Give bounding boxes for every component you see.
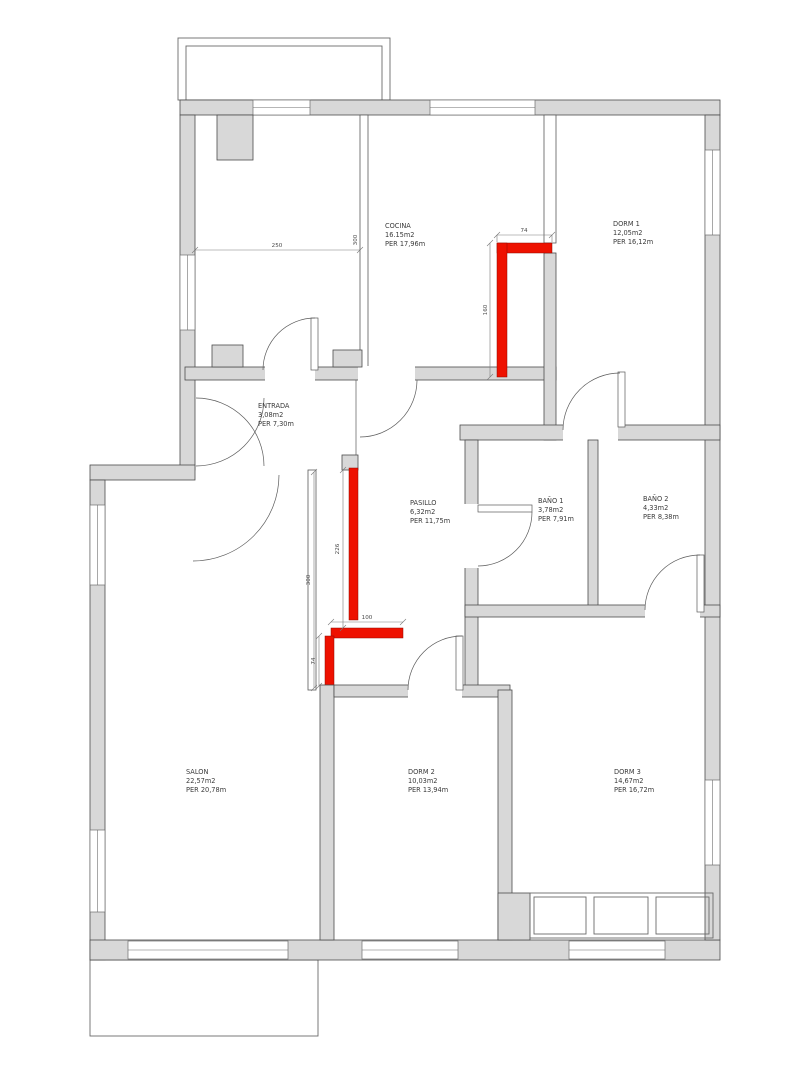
room-area: 16.15m2 bbox=[385, 231, 415, 239]
pillar-pasillo-top bbox=[333, 350, 362, 367]
floor-plan-drawing: 250 300 74 160 226 300 100 74 COCINA 16.… bbox=[0, 0, 811, 1080]
room-label-pasillo: PASILLO 6,32m2 PER 11,75m bbox=[410, 499, 450, 525]
room-perimeter: PER 20,78m bbox=[186, 786, 226, 794]
red-wall-kitchen-side bbox=[497, 243, 507, 377]
room-name: DORM 3 bbox=[614, 768, 641, 776]
room-label-cocina: COCINA 16.15m2 PER 17,96m bbox=[385, 222, 425, 248]
top-terrace-inner-outline bbox=[186, 46, 382, 100]
room-label-entrada: ENTRADA 3,08m2 PER 7,30m bbox=[258, 402, 294, 428]
door-gap-cocina bbox=[358, 366, 415, 381]
room-perimeter: PER 16,72m bbox=[614, 786, 654, 794]
dim-label-160: 160 bbox=[483, 304, 489, 315]
door-leaf-bano2 bbox=[697, 555, 704, 612]
window-dorm3-bottom bbox=[569, 941, 665, 959]
dim-label-100: 100 bbox=[362, 615, 373, 621]
room-perimeter: PER 7,91m bbox=[538, 515, 574, 523]
wall-leftroom-cocina bbox=[360, 115, 368, 367]
closet-section-3 bbox=[656, 897, 709, 934]
room-area: 3,08m2 bbox=[258, 411, 283, 419]
room-name: SALON bbox=[186, 768, 208, 776]
room-label-dorm2: DORM 2 10,03m2 PER 13,94m bbox=[408, 768, 448, 794]
room-name: BAÑO 2 bbox=[643, 494, 668, 503]
window-salon-left-2 bbox=[90, 830, 105, 912]
room-area: 10,03m2 bbox=[408, 777, 438, 785]
dim-label-226: 226 bbox=[335, 543, 341, 554]
dim-label-74-pasillo: 74 bbox=[311, 657, 317, 665]
room-area: 3,78m2 bbox=[538, 506, 563, 514]
door-gap-dorm2 bbox=[408, 684, 462, 698]
room-area: 12,05m2 bbox=[613, 229, 643, 237]
wall-salon-dorm2 bbox=[320, 685, 334, 940]
room-perimeter: PER 13,94m bbox=[408, 786, 448, 794]
room-perimeter: PER 7,30m bbox=[258, 420, 294, 428]
room-area: 14,67m2 bbox=[614, 777, 644, 785]
pillar-top-left-room bbox=[217, 115, 253, 160]
room-area: 6,32m2 bbox=[410, 508, 435, 516]
room-area: 4,33m2 bbox=[643, 504, 668, 512]
room-label-dorm1: DORM 1 12,05m2 PER 16,12m bbox=[613, 220, 653, 246]
window-dorm1-right bbox=[705, 150, 720, 235]
window-kitchen-top bbox=[430, 100, 535, 115]
room-perimeter: PER 11,75m bbox=[410, 517, 450, 525]
room-label-bano1: BAÑO 1 3,78m2 PER 7,91m bbox=[538, 496, 574, 523]
exterior-wall-step bbox=[90, 465, 195, 480]
dim-label-250: 250 bbox=[272, 243, 283, 249]
door-leaf-dorm2 bbox=[456, 636, 463, 690]
door-gap-bano2 bbox=[645, 604, 700, 618]
pillar-entrada-left bbox=[212, 345, 243, 367]
room-name: PASILLO bbox=[410, 499, 437, 507]
room-perimeter: PER 8,38m bbox=[643, 513, 679, 521]
window-dorm2-bottom bbox=[362, 941, 458, 959]
door-leaf-bano1 bbox=[478, 505, 532, 512]
top-terrace-outline bbox=[178, 38, 390, 100]
room-name: DORM 2 bbox=[408, 768, 435, 776]
room-perimeter: PER 17,96m bbox=[385, 240, 425, 248]
room-name: BAÑO 1 bbox=[538, 496, 563, 505]
window-salon-left-1 bbox=[90, 505, 105, 585]
floor-plan-page: 250 300 74 160 226 300 100 74 COCINA 16.… bbox=[0, 0, 811, 1080]
closet-outline bbox=[530, 893, 713, 938]
door-arc-entrance-2 bbox=[196, 398, 264, 466]
closet-pillar bbox=[498, 893, 530, 940]
bottom-terrace-outline bbox=[90, 960, 318, 1036]
room-name: DORM 1 bbox=[613, 220, 640, 228]
door-gap-leftroom bbox=[265, 366, 315, 381]
door-gap-bano1 bbox=[464, 504, 479, 568]
dim-label-74-kitchen: 74 bbox=[520, 228, 528, 234]
wall-cocina-dorm1-lower bbox=[544, 253, 556, 440]
window-left-upper bbox=[180, 255, 195, 330]
red-wall-pasillo-stub bbox=[325, 636, 334, 686]
room-label-salon: SALON 22,57m2 PER 20,78m bbox=[186, 768, 226, 794]
window-top-left bbox=[253, 100, 310, 115]
window-salon-bottom bbox=[128, 941, 288, 959]
window-dorm3-right bbox=[705, 780, 720, 865]
door-arc-leftroom bbox=[263, 318, 315, 370]
dim-label-300-salon: 300 bbox=[306, 574, 312, 585]
door-arc-entrance-1 bbox=[196, 398, 264, 466]
door-arc-bano1 bbox=[478, 512, 532, 566]
door-arc-salon bbox=[193, 475, 279, 561]
wall-cocina-dorm1-upper bbox=[544, 115, 556, 243]
door-arc-cocina bbox=[360, 380, 417, 437]
closet-section-1 bbox=[534, 897, 586, 934]
room-label-dorm3: DORM 3 14,67m2 PER 16,72m bbox=[614, 768, 654, 794]
door-leaf-leftroom bbox=[311, 318, 318, 370]
room-perimeter: PER 16,12m bbox=[613, 238, 653, 246]
room-name: ENTRADA bbox=[258, 402, 290, 410]
room-label-bano2: BAÑO 2 4,33m2 PER 8,38m bbox=[643, 494, 679, 521]
room-area: 22,57m2 bbox=[186, 777, 216, 785]
red-wall-pasillo-side bbox=[349, 468, 358, 620]
door-arc-dorm2 bbox=[408, 636, 462, 690]
dim-label-300-left: 300 bbox=[353, 234, 359, 245]
door-arc-bano2 bbox=[645, 555, 700, 610]
door-gap-dorm1 bbox=[563, 424, 618, 441]
door-arc-dorm1 bbox=[563, 373, 620, 430]
room-name: COCINA bbox=[385, 222, 411, 230]
wall-bano1-bano2 bbox=[588, 440, 598, 610]
closet-section-2 bbox=[594, 897, 648, 934]
door-leaf-dorm1 bbox=[618, 372, 625, 427]
